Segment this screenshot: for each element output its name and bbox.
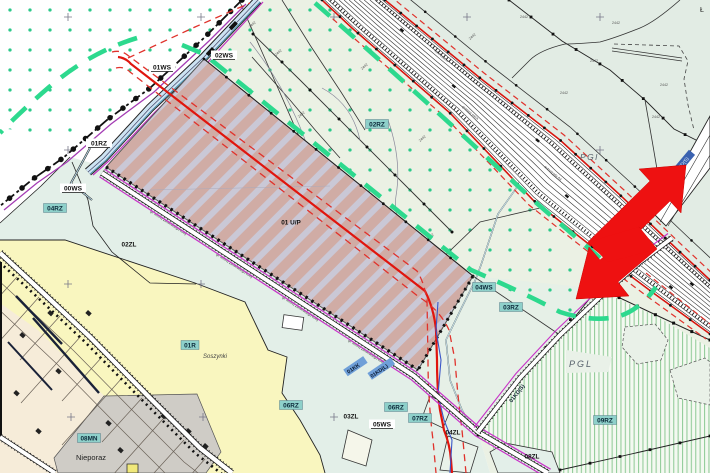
svg-text:03ZL: 03ZL [344, 413, 359, 420]
svg-text:PGL: PGL [569, 359, 593, 369]
svg-text:01WS: 01WS [153, 65, 172, 72]
svg-text:2442: 2442 [590, 59, 598, 63]
svg-text:04ZL: 04ZL [446, 429, 461, 436]
svg-text:2442: 2442 [612, 21, 620, 25]
svg-text:2442: 2442 [520, 15, 528, 19]
svg-text:Soszynki: Soszynki [203, 354, 228, 360]
svg-text:05WS: 05WS [373, 422, 392, 429]
svg-text:02ZL: 02ZL [122, 241, 137, 248]
svg-text:07RZ: 07RZ [412, 416, 428, 423]
svg-text:09RZ: 09RZ [597, 418, 613, 425]
svg-text:08MN: 08MN [80, 436, 97, 443]
svg-text:01R: 01R [184, 343, 196, 350]
svg-text:02RZ: 02RZ [369, 122, 385, 129]
svg-text:01 U/P: 01 U/P [281, 219, 301, 226]
svg-text:PGl: PGl [580, 152, 599, 162]
svg-text:Nieporaz: Nieporaz [76, 453, 106, 462]
svg-text:Ł: Ł [700, 7, 704, 14]
svg-text:06RZ: 06RZ [388, 405, 404, 412]
svg-text:01RZ: 01RZ [91, 141, 107, 148]
svg-text:04WS: 04WS [475, 285, 493, 292]
svg-text:02WS: 02WS [215, 53, 234, 60]
svg-text:00WS: 00WS [64, 186, 83, 193]
svg-text:04RZ: 04RZ [47, 206, 63, 213]
svg-text:2442: 2442 [560, 91, 568, 95]
svg-text:06RZ: 06RZ [283, 403, 299, 410]
svg-text:03RZ: 03RZ [503, 305, 519, 312]
svg-text:2442: 2442 [652, 115, 660, 119]
svg-text:2442: 2442 [660, 83, 668, 87]
svg-text:08ZL: 08ZL [525, 453, 540, 460]
